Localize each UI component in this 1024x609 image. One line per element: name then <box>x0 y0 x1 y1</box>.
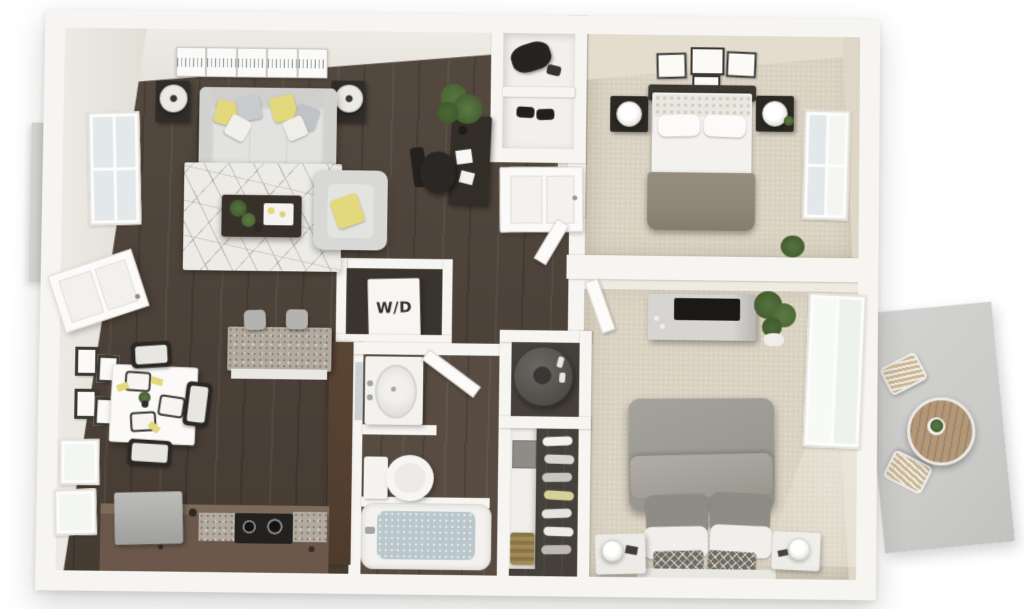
bed1-pillow <box>703 114 746 138</box>
dining-chair <box>131 340 172 368</box>
bar-stool <box>244 309 267 330</box>
place-setting-plate <box>124 371 151 393</box>
console-knob <box>660 324 665 329</box>
bed1-pillow <box>658 114 700 137</box>
desk-papers <box>455 149 473 165</box>
chair-cushion <box>131 443 168 463</box>
window-pane <box>807 298 836 443</box>
bathtub-faucet <box>365 527 375 534</box>
hanging-clothes <box>544 454 574 464</box>
bedroom1-corner-plant <box>781 235 805 257</box>
window-pane <box>64 444 94 480</box>
place-setting-plate <box>157 394 186 419</box>
door-panel <box>510 176 542 224</box>
dining-window <box>59 439 99 485</box>
skyline-print <box>298 59 326 68</box>
apartment-floorplan: W/D <box>0 0 1024 609</box>
skyline-print <box>268 59 296 68</box>
breakfast-bar-base <box>231 369 327 380</box>
counter-item <box>158 544 163 549</box>
hanging-clothes <box>542 472 572 482</box>
bedroom1-wall-art <box>656 53 687 79</box>
panoramic-wall-art <box>176 47 328 79</box>
sofa-arm <box>198 87 212 167</box>
closet-wall-top <box>500 330 592 343</box>
counter-item <box>309 546 315 552</box>
art-panel <box>298 49 327 77</box>
laundry-closet-wall-top <box>337 258 453 269</box>
window-pane <box>94 170 114 221</box>
tray-item-yellow <box>268 207 275 214</box>
bed2-duvet-fold <box>630 453 773 498</box>
bedroom2-window <box>802 293 867 450</box>
entry-closet-shelf <box>503 87 575 98</box>
water-heater-cap <box>533 366 551 384</box>
art-panel <box>268 49 297 77</box>
bathroom-half-wall <box>362 424 436 435</box>
plant-pot <box>764 333 784 346</box>
washer-dryer-label: W/D <box>368 278 421 337</box>
door-knob <box>134 293 140 299</box>
sink-faucet <box>367 394 373 400</box>
refrigerator <box>114 491 183 545</box>
counter-granite-right <box>293 512 328 543</box>
storage-box <box>512 440 536 468</box>
window-pane <box>828 115 846 164</box>
sofa-arm <box>323 88 337 168</box>
nightstand-plant <box>784 116 794 126</box>
woven-hamper <box>510 533 534 565</box>
window-pane <box>59 494 92 531</box>
water-heater-pipe <box>559 372 566 382</box>
shoe <box>536 109 554 120</box>
bathtub-water <box>377 511 476 560</box>
floorplan-screenshot: W/D <box>0 0 1024 609</box>
window-pane <box>826 167 844 216</box>
bedroom1-window <box>802 110 851 221</box>
dining-chair <box>127 438 173 467</box>
bed1-blanket <box>647 172 755 231</box>
front-door <box>499 166 583 232</box>
sink-faucet <box>367 380 373 386</box>
art-panel <box>177 48 206 76</box>
vanity-mirror <box>355 362 364 420</box>
window-pane <box>808 115 826 164</box>
shoe <box>516 106 535 118</box>
hanging-clothes <box>542 436 572 446</box>
sink-drain <box>391 387 396 392</box>
desk-lamp <box>458 126 467 135</box>
hanging-clothes <box>544 490 575 501</box>
skyline-print <box>177 58 205 67</box>
living-room-window <box>88 111 142 226</box>
closet-divider-wall <box>499 416 591 429</box>
window-pane <box>93 117 113 168</box>
toilet-tank <box>363 456 388 498</box>
dining-wall-art <box>75 347 99 376</box>
window-pane <box>807 166 825 215</box>
hanging-clothes <box>541 545 571 555</box>
window-pane <box>116 169 136 220</box>
counter-item <box>189 508 197 516</box>
door-panel <box>546 175 574 223</box>
window-pane <box>833 299 862 444</box>
coffee-table-bowl <box>253 223 262 232</box>
console-knob <box>654 316 659 321</box>
hanging-clothes <box>543 526 573 536</box>
chair-cushion <box>186 385 208 423</box>
breakfast-bar <box>227 327 332 372</box>
dining-window <box>54 489 97 536</box>
art-panel <box>207 48 236 76</box>
patio-centerpiece-plant <box>930 419 943 432</box>
counter-granite-left <box>198 513 235 542</box>
skyline-print <box>207 58 235 67</box>
tv <box>674 298 740 321</box>
bar-stool <box>286 309 308 329</box>
pantry-cabinet <box>326 342 353 565</box>
window-pane <box>115 116 135 167</box>
washer-dryer-unit: W/D <box>368 278 421 337</box>
art-panel <box>238 49 267 77</box>
centerpiece-base <box>141 401 148 408</box>
skyline-print <box>238 59 266 68</box>
dining-chair <box>182 381 213 428</box>
tall-plant <box>437 102 459 124</box>
bedroom1-wall-art <box>726 51 757 78</box>
laundry-closet-wall-right <box>442 259 453 345</box>
door-knob <box>572 195 577 200</box>
chair-cushion <box>135 345 168 365</box>
nightstand-lamp <box>601 540 623 562</box>
hanging-clothes <box>542 508 572 518</box>
wall-bedroom-divider <box>566 255 858 283</box>
tray-item-yellow <box>279 211 285 217</box>
bedroom1-wall-art <box>690 47 724 75</box>
nightstand-lamp <box>616 101 642 127</box>
